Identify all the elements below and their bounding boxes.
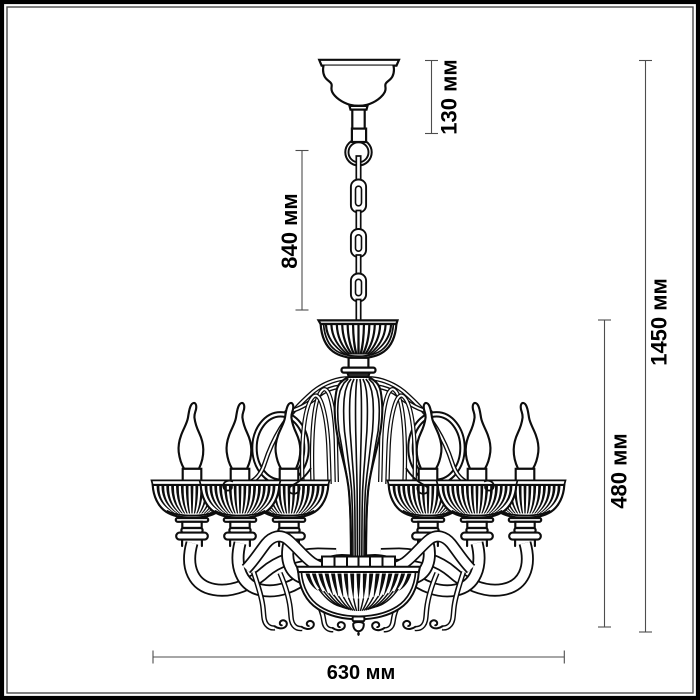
svg-text:1450 мм: 1450 мм <box>647 278 672 366</box>
svg-text:480 мм: 480 мм <box>607 433 632 508</box>
svg-text:840 мм: 840 мм <box>277 193 302 268</box>
svg-text:130 мм: 130 мм <box>437 59 462 134</box>
svg-text:630 мм: 630 мм <box>327 662 396 684</box>
